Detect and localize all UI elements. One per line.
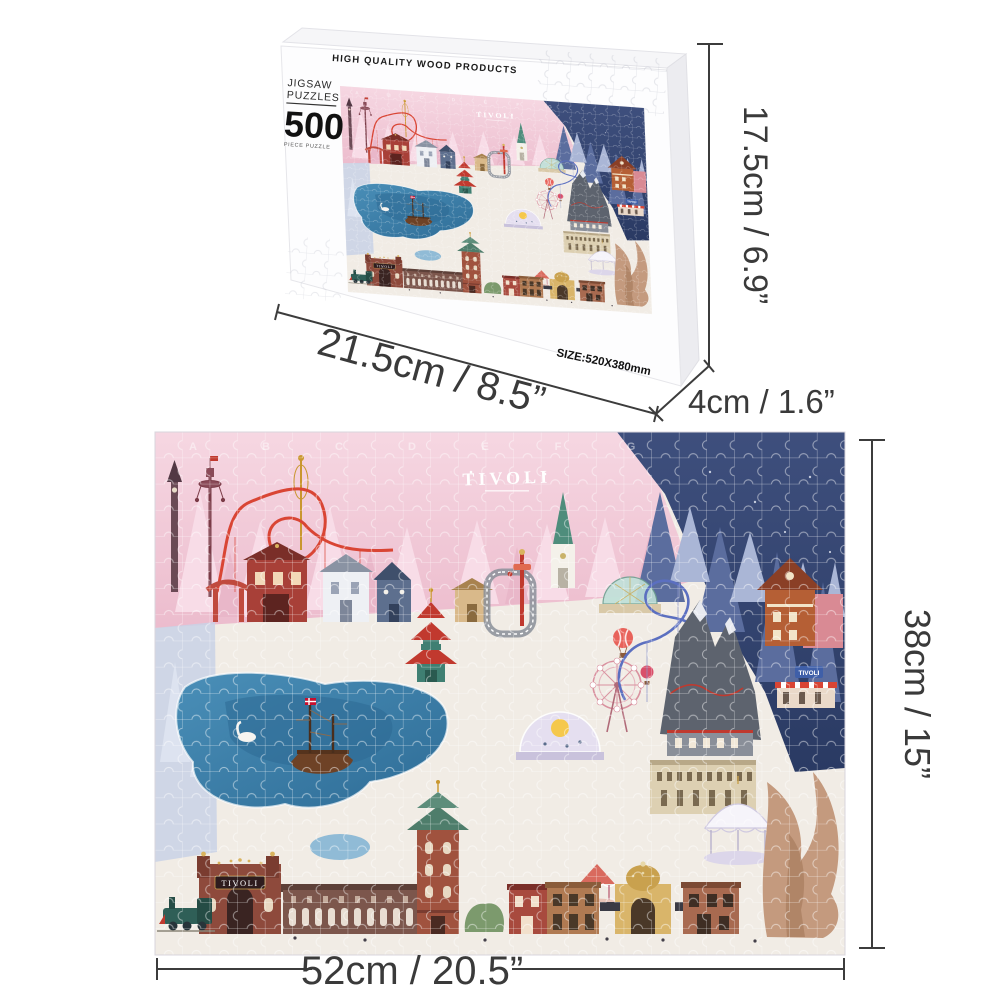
box-blank-puzzle-texture-bottom xyxy=(285,236,345,302)
dimension-puzzle-height xyxy=(859,440,885,948)
puzzle-width-label: 52cm / 20.5” xyxy=(301,949,523,993)
puzzle-image xyxy=(155,432,845,955)
product-photo: A B C D E F G TIVOLI xyxy=(0,0,1000,1000)
box-height-label: 17.5cm / 6.9” xyxy=(736,106,774,304)
box-artwork xyxy=(340,86,652,314)
piece-count: 500 xyxy=(283,103,345,148)
box-depth-label: 4cm / 1.6” xyxy=(688,383,835,420)
dimension-box-height xyxy=(697,44,723,372)
puzzle-height-label: 38cm / 15” xyxy=(897,609,938,779)
product-illustration: A B C D E F G TIVOLI xyxy=(0,0,1000,1000)
